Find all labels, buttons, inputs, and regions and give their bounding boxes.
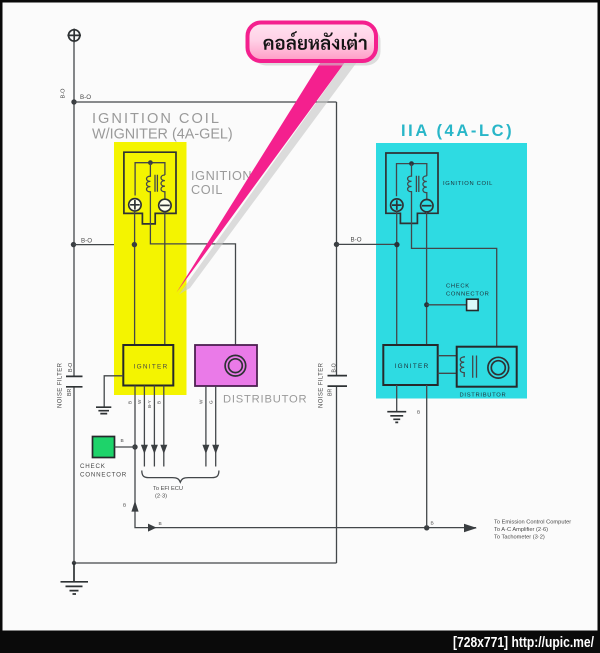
svg-text:CONNECTOR: CONNECTOR: [446, 292, 490, 298]
svg-text:IGNITION: IGNITION: [191, 169, 252, 183]
svg-text:B-O: B-O: [81, 238, 92, 245]
svg-text:To A·C Amplifier (2·6): To A·C Amplifier (2·6): [494, 527, 548, 533]
svg-text:B-O: B-O: [80, 94, 91, 101]
svg-text:BR: BR: [328, 389, 334, 396]
svg-text:B: B: [159, 521, 162, 527]
svg-text:CONNECTOR: CONNECTOR: [80, 472, 127, 479]
svg-text:B-O: B-O: [68, 363, 74, 372]
svg-text:NOISE FILTER: NOISE FILTER: [58, 362, 64, 408]
svg-text:G: G: [208, 400, 213, 404]
svg-text:B: B: [128, 401, 133, 404]
svg-text:B: B: [121, 438, 124, 444]
svg-text:W/IGNITER (4A-GEL): W/IGNITER (4A-GEL): [92, 127, 233, 143]
svg-text:B: B: [431, 521, 434, 527]
svg-text:DISTRIBUTOR: DISTRIBUTOR: [223, 394, 307, 406]
svg-text:NOISE FILTER: NOISE FILTER: [319, 362, 325, 408]
svg-text:IGNITION COIL: IGNITION COIL: [92, 111, 221, 127]
svg-text:IGNITION COIL: IGNITION COIL: [443, 181, 493, 187]
svg-text:[728x771] http://upic.me/: [728x771] http://upic.me/: [453, 635, 594, 651]
svg-text:CHECK: CHECK: [80, 463, 106, 470]
svg-text:COIL: COIL: [191, 183, 223, 197]
svg-text:B-O: B-O: [332, 363, 338, 372]
svg-text:B-O: B-O: [351, 237, 362, 244]
svg-text:W: W: [137, 399, 142, 404]
svg-text:IIA (4A-LC): IIA (4A-LC): [401, 122, 514, 140]
svg-text:B: B: [157, 401, 162, 404]
svg-text:To EFI ECU: To EFI ECU: [153, 486, 183, 492]
svg-text:B: B: [123, 503, 126, 509]
svg-text:(2·3): (2·3): [155, 494, 167, 500]
svg-text:IGNITER: IGNITER: [395, 363, 430, 370]
svg-text:B-Y: B-Y: [147, 400, 152, 408]
svg-text:W: W: [198, 399, 203, 404]
svg-text:To Emission Control Computer: To Emission Control Computer: [494, 520, 571, 526]
svg-text:IGNITER: IGNITER: [134, 364, 169, 371]
svg-text:DISTRIBUTOR: DISTRIBUTOR: [460, 393, 507, 399]
svg-text:BR: BR: [67, 389, 73, 396]
svg-text:To Tachometer (3·2): To Tachometer (3·2): [494, 535, 545, 541]
svg-text:B-O: B-O: [61, 88, 67, 99]
svg-text:CHECK: CHECK: [446, 284, 470, 290]
svg-text:B: B: [417, 410, 420, 416]
